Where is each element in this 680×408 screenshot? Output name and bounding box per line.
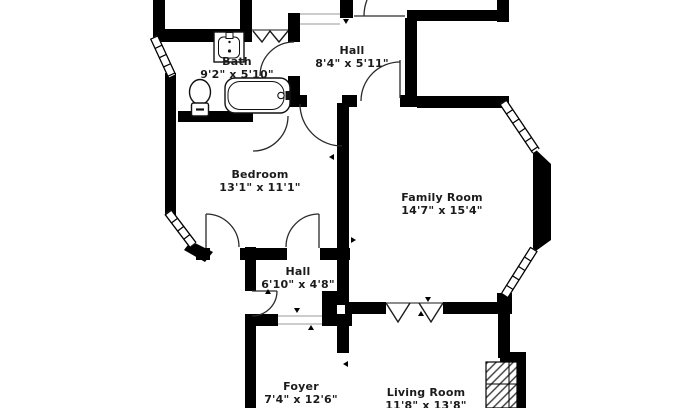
door-hall-bedroom [300,104,342,146]
door-hall-family [361,60,400,101]
bifold-family-living-right [419,303,443,322]
door-bedroom-right [286,214,319,248]
floor-plan: Bath 9'2" x 5'10" Hall 8'4" x 5'11" Bedr… [0,0,680,408]
bathtub [225,78,290,113]
door-bath-entry [260,42,294,76]
bifold-top-left-room [253,31,288,42]
window-bedroom-angled [168,212,193,245]
floor-plan-drawing [0,0,680,408]
door-bath-bedroom [253,116,288,151]
sink [214,32,244,62]
window-family-bay-lower [505,249,534,295]
bifold-family-living-left [386,303,410,322]
opening-lines [278,14,340,324]
toilet [190,80,211,117]
door-hall-top [354,0,405,16]
fireplace [486,362,517,408]
fixtures [190,32,518,408]
window-family-bay-upper [503,102,536,151]
window-bath-angled [154,37,172,76]
door-bedroom-left [206,214,239,248]
walls [153,0,551,408]
door-hall-closet [252,291,277,316]
